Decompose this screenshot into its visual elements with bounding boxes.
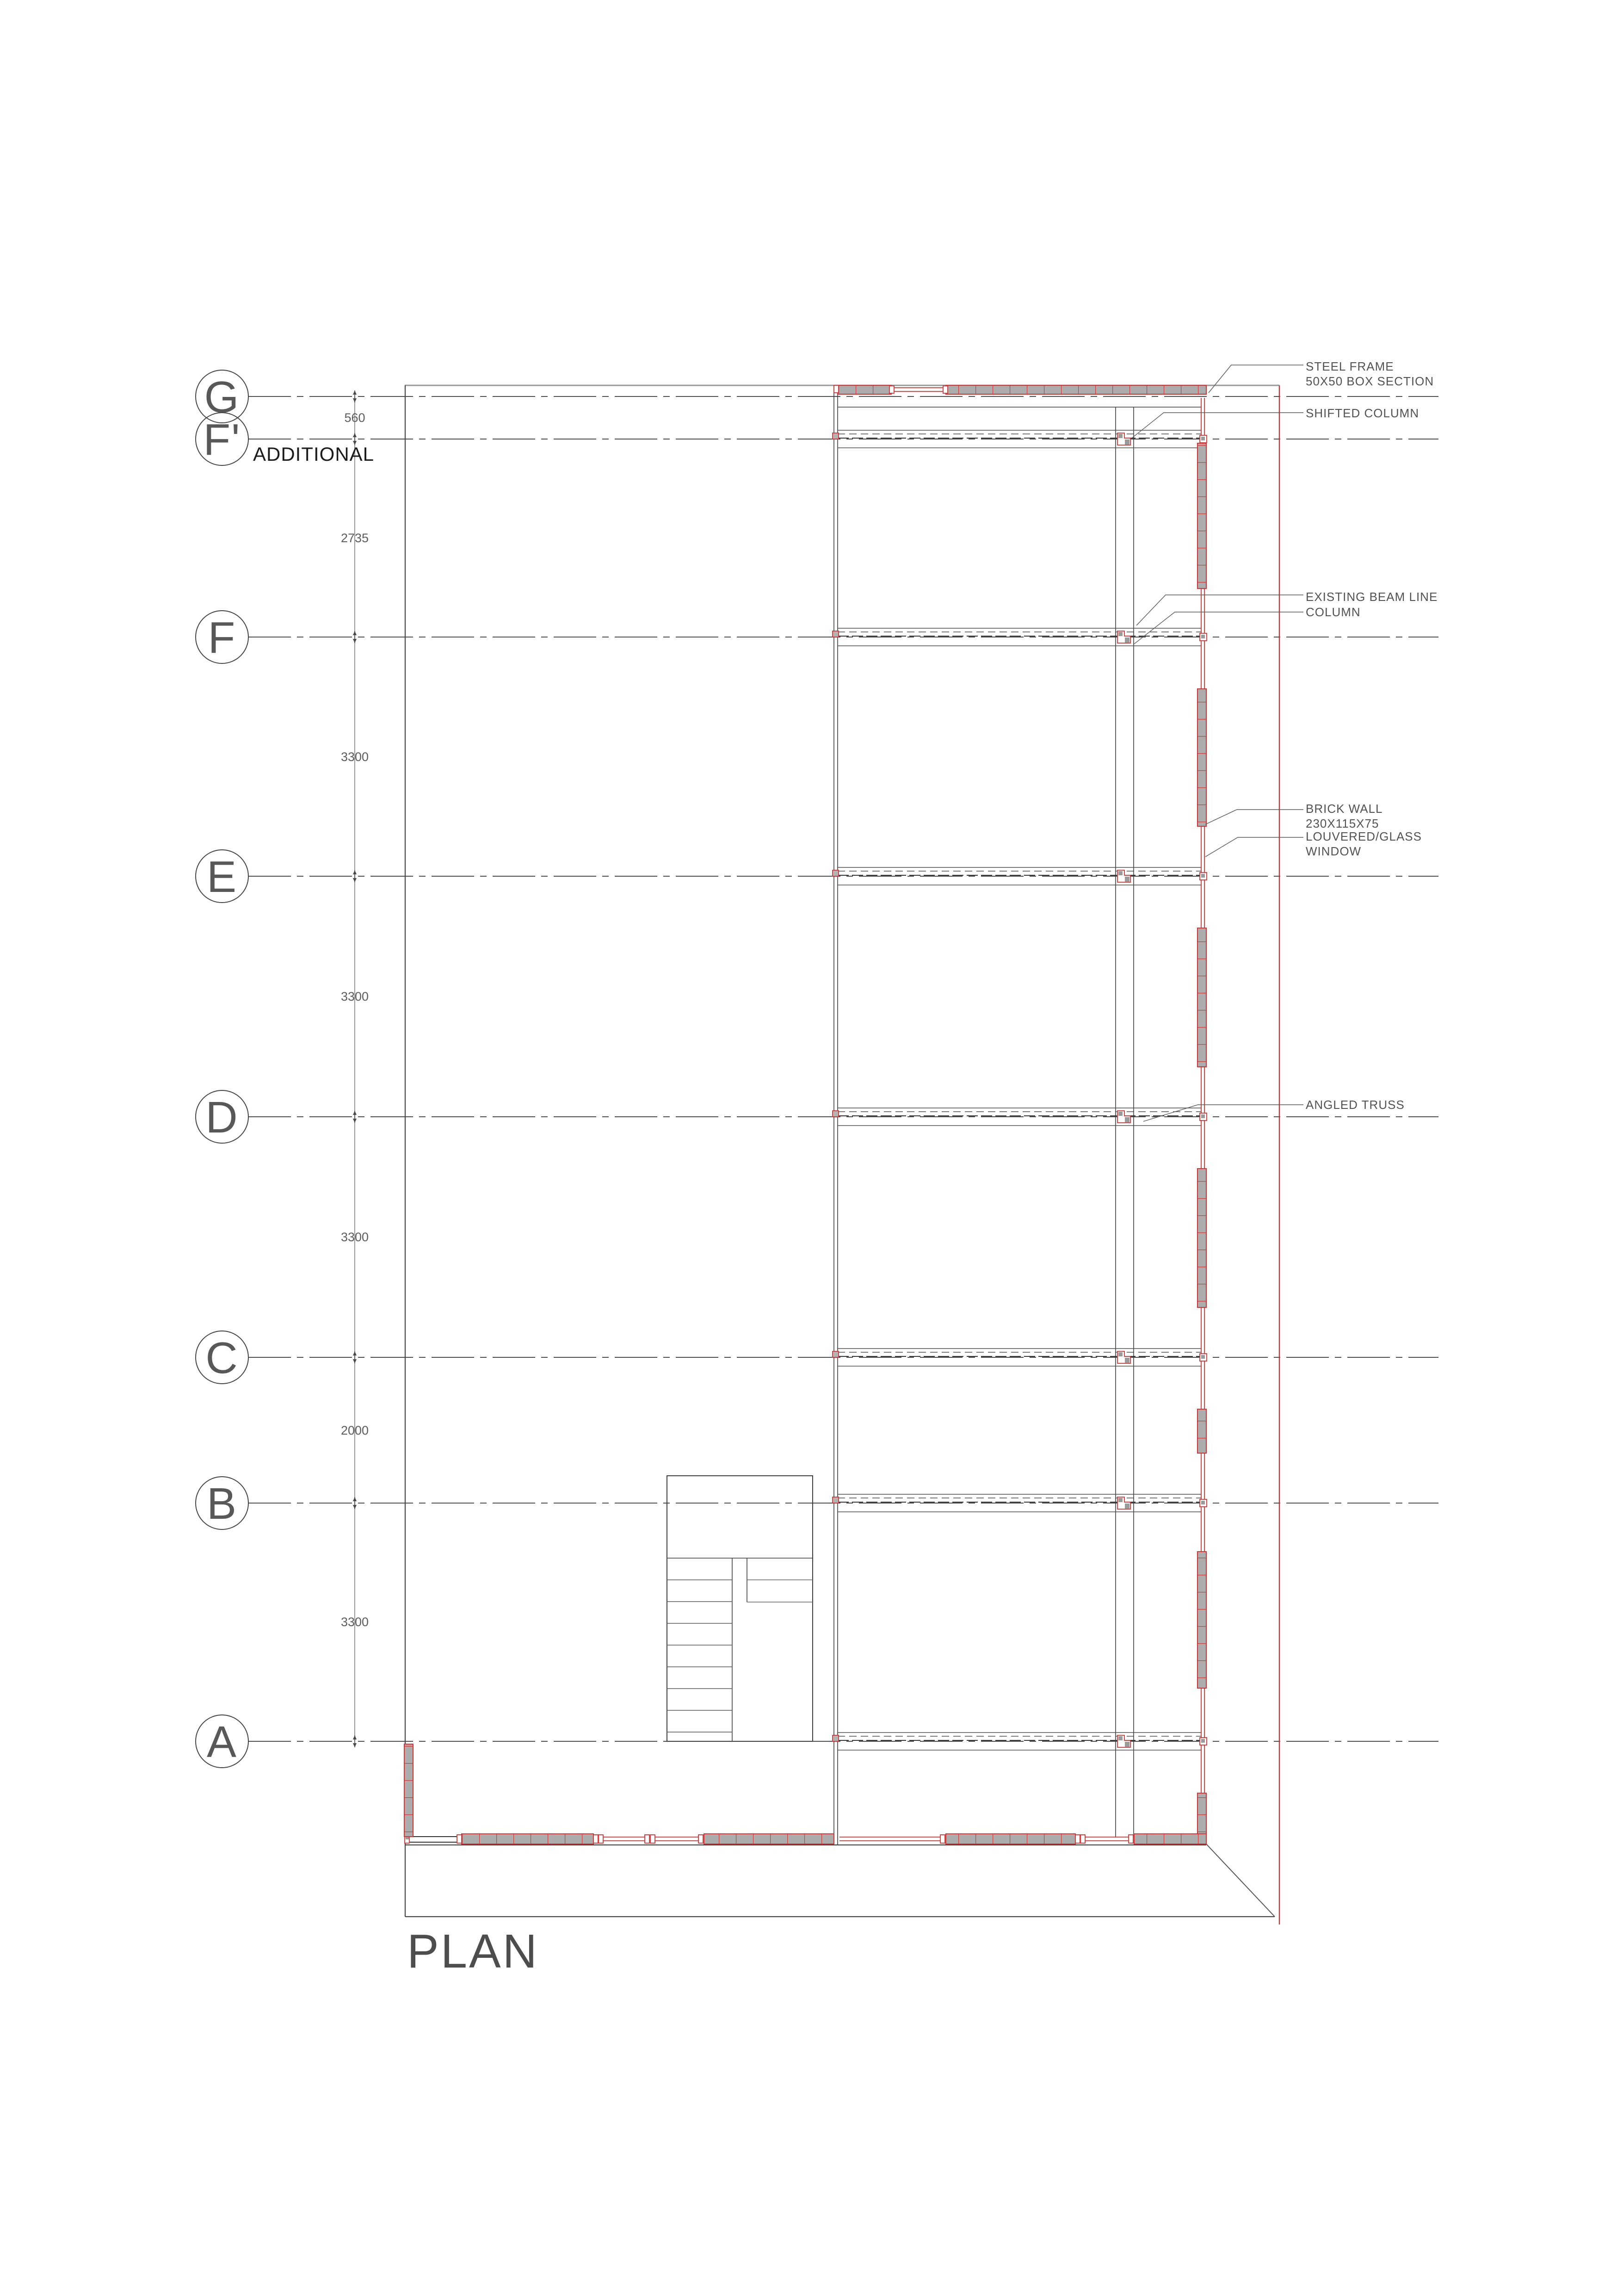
angled-trusses [833, 430, 1202, 1750]
annotation-leaders [1132, 365, 1303, 1121]
annotation-steel-frame-line1: STEEL FRAME [1306, 359, 1394, 373]
stair-treads [667, 1580, 732, 1732]
annotation-brick-wall-line2: 230X115X75 [1306, 817, 1379, 830]
grid-bubble-label: B [207, 1479, 237, 1529]
grid-bubble-label: F' [204, 415, 241, 464]
dimension-label: 2000 [341, 1423, 369, 1437]
dimension-label: 3300 [341, 1230, 369, 1244]
dimension-label: 2735 [341, 531, 369, 545]
drawing-sheet: G F' F E D C B [0, 0, 1623, 2296]
dimension-label: 560 [344, 411, 365, 425]
additional-label: ADDITIONAL [253, 443, 374, 465]
dimension-label: 3300 [341, 750, 369, 764]
dimension-label: 3300 [341, 1615, 369, 1629]
annotation-column: COLUMN [1306, 605, 1361, 619]
floor-plan-drawing: G F' F E D C B [0, 0, 1623, 2296]
staircase [667, 1476, 813, 1741]
grid-bubble-label: F [208, 613, 236, 662]
annotation-texts: STEEL FRAME 50X50 BOX SECTION SHIFTED CO… [1306, 359, 1438, 1112]
grid-row-A: A [196, 1715, 1438, 1768]
west-brick-wall [404, 1744, 413, 1837]
dimension-chain: 560 2735 3300 3300 3300 2000 3300 [341, 390, 369, 1747]
grid-row-F: F [196, 611, 1438, 663]
grid-bubble-label: E [207, 852, 237, 902]
dimension-label: 3300 [341, 990, 369, 1003]
grid-bubble-label: G [204, 372, 240, 422]
grid-row-E: E [196, 850, 1438, 903]
annotation-steel-frame-line2: 50X50 BOX SECTION [1306, 374, 1434, 388]
tower-structure [834, 385, 1202, 1845]
site-boundary [405, 385, 1279, 1925]
east-brick-wall [1197, 398, 1207, 1844]
annotation-louvered-window-line1: LOUVERED/GLASS [1306, 829, 1422, 843]
drawing-title: PLAN [407, 1925, 539, 1978]
boundary-diagonal [1206, 1844, 1275, 1917]
grid-bubble-label: D [205, 1093, 238, 1142]
annotation-brick-wall-line1: BRICK WALL [1306, 802, 1383, 816]
annotation-louvered-window-line2: WINDOW [1306, 844, 1361, 858]
annotation-existing-beam-line: EXISTING BEAM LINE [1306, 590, 1438, 604]
north-brick-wall [834, 385, 1206, 394]
grid-row-C: C [196, 1331, 1438, 1384]
annotation-angled-truss: ANGLED TRUSS [1306, 1098, 1405, 1112]
grid-row-B: B [196, 1477, 1438, 1529]
grid-system: G F' F E D C B [196, 370, 1438, 1768]
grid-row-F-prime: F' [196, 413, 1438, 465]
grid-row-D: D [196, 1090, 1438, 1143]
grid-row-G: G [196, 370, 1438, 423]
south-brick-wall [405, 1834, 1206, 1845]
grid-bubble-label: C [205, 1333, 238, 1383]
grid-bubble-label: A [207, 1717, 237, 1767]
annotation-shifted-column: SHIFTED COLUMN [1306, 406, 1419, 420]
